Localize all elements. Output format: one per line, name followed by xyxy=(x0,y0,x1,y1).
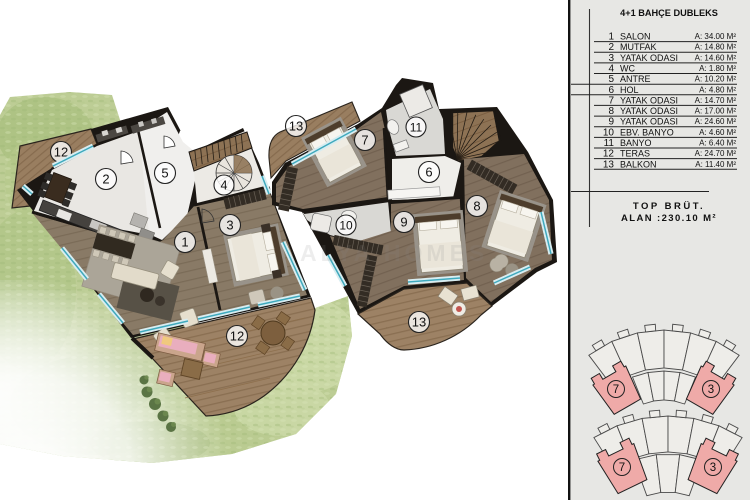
svg-text:A: 24.70 M²: A: 24.70 M² xyxy=(695,149,737,158)
svg-text:3: 3 xyxy=(708,384,714,396)
svg-text:A: 1.80 M²: A: 1.80 M² xyxy=(699,64,736,73)
svg-text:A: 14.70 M²: A: 14.70 M² xyxy=(695,96,737,105)
svg-text:A: 17.00 M²: A: 17.00 M² xyxy=(695,107,737,116)
svg-text:13: 13 xyxy=(603,159,615,170)
svg-text:2: 2 xyxy=(102,172,109,187)
svg-text:MUTFAK: MUTFAK xyxy=(620,42,657,52)
svg-text:SALON: SALON xyxy=(620,32,651,42)
svg-text:A: 4.60 M²: A: 4.60 M² xyxy=(699,128,736,137)
svg-text:12: 12 xyxy=(230,329,244,344)
svg-text:9: 9 xyxy=(608,117,614,128)
svg-text:6: 6 xyxy=(425,165,432,180)
svg-text:ALYA HOMES: ALYA HOMES xyxy=(300,240,488,266)
svg-text:4+1 BAHÇE DUBLEKS: 4+1 BAHÇE DUBLEKS xyxy=(620,8,718,18)
svg-text:10: 10 xyxy=(339,218,353,232)
svg-text:7: 7 xyxy=(608,95,614,106)
svg-text:YATAK ODASI: YATAK ODASI xyxy=(620,95,678,105)
svg-text:BALKON: BALKON xyxy=(620,159,657,169)
svg-text:ALAN :230.10 M²: ALAN :230.10 M² xyxy=(621,213,717,224)
svg-text:8: 8 xyxy=(608,106,614,117)
svg-text:A: 14.80 M²: A: 14.80 M² xyxy=(695,43,737,52)
svg-text:1: 1 xyxy=(608,32,614,43)
svg-text:11: 11 xyxy=(410,120,423,134)
svg-text:3: 3 xyxy=(608,53,614,64)
svg-text:A: 14.60 M²: A: 14.60 M² xyxy=(695,53,737,62)
svg-text:YATAK ODASI: YATAK ODASI xyxy=(620,117,678,127)
svg-text:7: 7 xyxy=(619,462,625,474)
svg-text:5: 5 xyxy=(161,166,168,181)
svg-text:3: 3 xyxy=(710,462,716,474)
svg-text:10: 10 xyxy=(603,127,615,138)
svg-text:EBV. BANYO: EBV. BANYO xyxy=(620,127,674,137)
svg-text:A: 24.60 M²: A: 24.60 M² xyxy=(695,117,737,126)
svg-text:HOL: HOL xyxy=(620,85,639,95)
svg-text:7: 7 xyxy=(613,384,619,396)
svg-text:YATAK ODASI: YATAK ODASI xyxy=(620,106,678,116)
svg-text:7: 7 xyxy=(361,133,368,148)
svg-text:9: 9 xyxy=(400,215,407,230)
svg-text:ANTRE: ANTRE xyxy=(620,74,651,84)
svg-text:13: 13 xyxy=(412,315,426,330)
svg-text:WC: WC xyxy=(620,64,635,74)
svg-text:11: 11 xyxy=(604,138,615,149)
svg-text:6: 6 xyxy=(608,85,614,96)
svg-text:A: 4.80 M²: A: 4.80 M² xyxy=(699,85,736,94)
svg-text:12: 12 xyxy=(603,149,615,160)
svg-text:13: 13 xyxy=(289,119,303,134)
svg-text:TOP BRÜT.: TOP BRÜT. xyxy=(633,201,705,212)
svg-text:2: 2 xyxy=(608,42,614,53)
svg-text:A: 11.40 M²: A: 11.40 M² xyxy=(695,160,736,169)
svg-text:BANYO: BANYO xyxy=(620,138,652,148)
svg-text:8: 8 xyxy=(473,199,480,214)
svg-text:A: 10.20 M²: A: 10.20 M² xyxy=(695,75,737,84)
svg-text:TERAS: TERAS xyxy=(620,149,650,159)
svg-text:YATAK ODASI: YATAK ODASI xyxy=(620,53,678,63)
svg-text:4: 4 xyxy=(221,179,228,193)
svg-text:1: 1 xyxy=(181,235,188,250)
svg-text:4: 4 xyxy=(608,64,614,75)
svg-text:5: 5 xyxy=(608,74,614,85)
svg-text:A: 34.00 M²: A: 34.00 M² xyxy=(695,32,737,41)
svg-text:A: 6.40 M²: A: 6.40 M² xyxy=(699,139,736,148)
svg-text:3: 3 xyxy=(226,218,233,233)
